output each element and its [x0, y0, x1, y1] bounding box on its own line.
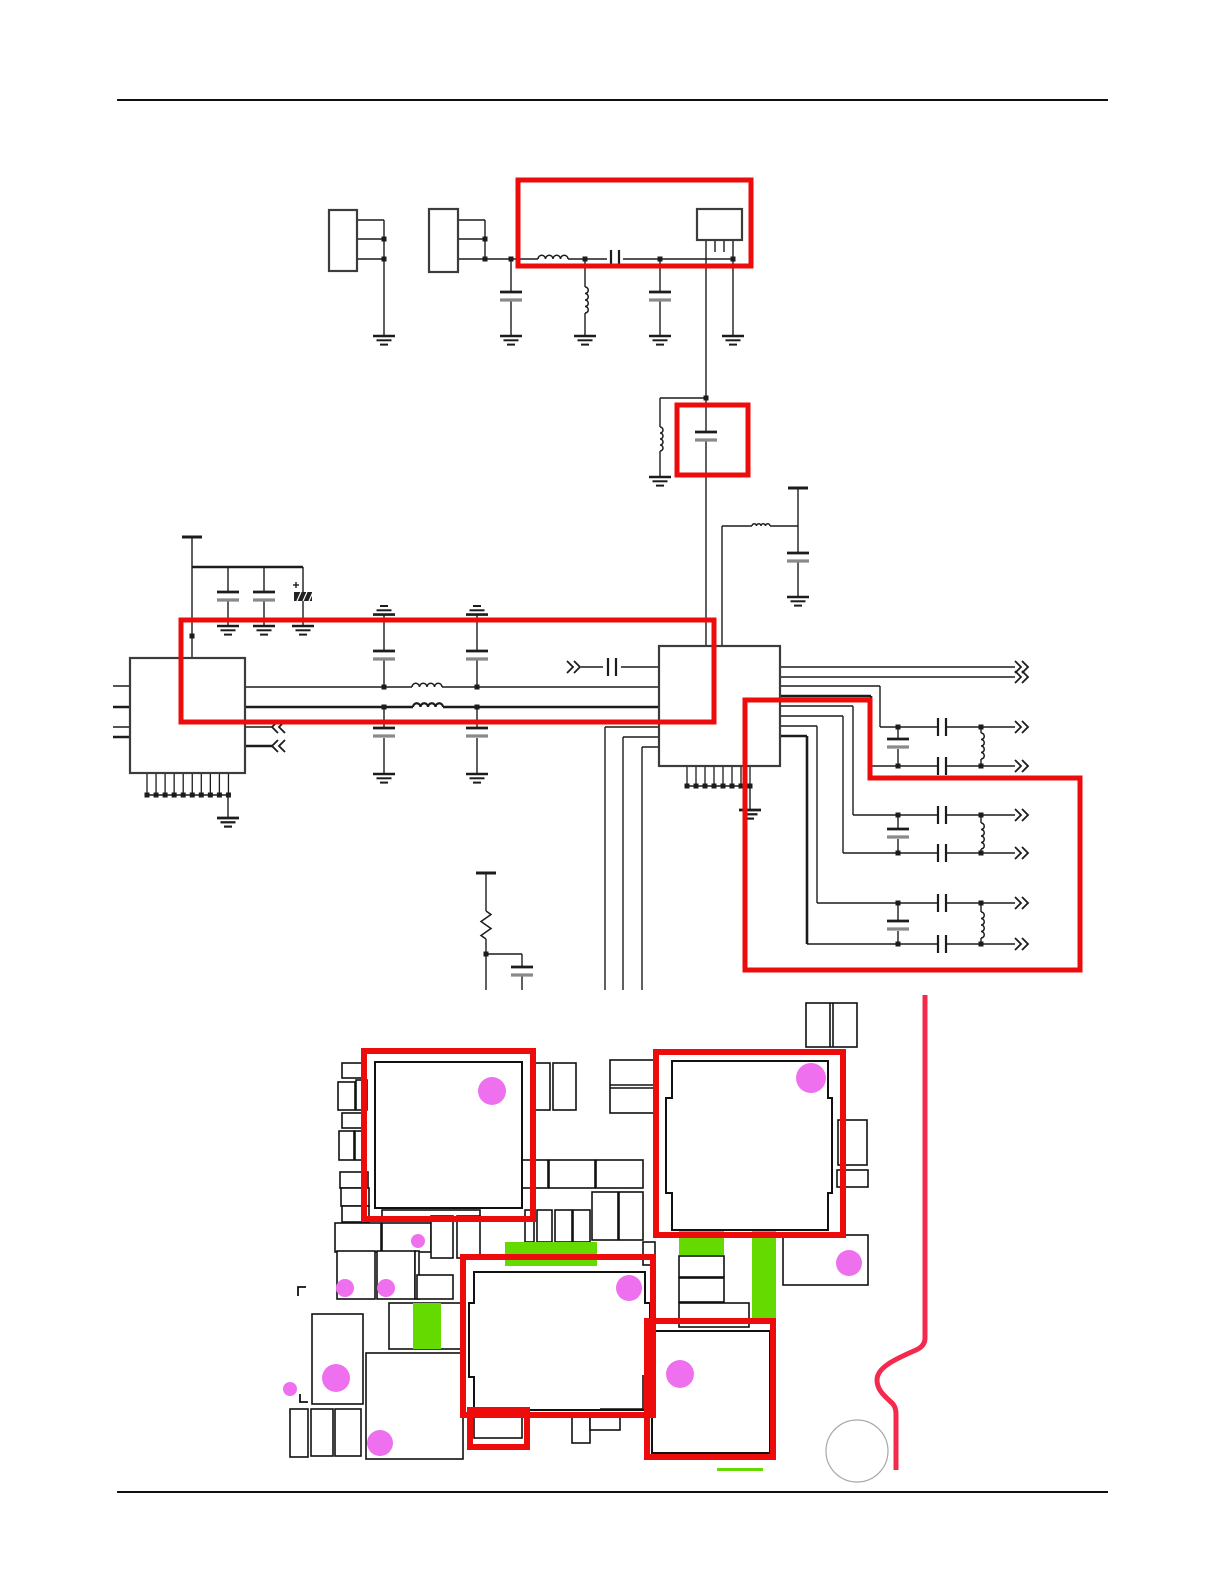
board-edge-line [877, 995, 925, 1470]
junction-dot [484, 952, 489, 957]
junction-dot [896, 764, 901, 769]
magenta-marker-dot [796, 1063, 826, 1093]
pcb-component [549, 1160, 595, 1188]
offpage-arrow-right-icon [1015, 847, 1028, 859]
junction-dot [979, 764, 984, 769]
pcb-component [553, 1063, 576, 1110]
junction-dot [896, 851, 901, 856]
left-ic [130, 658, 245, 773]
inductor [538, 255, 568, 259]
inductor [981, 823, 984, 849]
inductor [660, 427, 663, 451]
pcb-component [555, 1210, 572, 1242]
inductor [752, 524, 770, 526]
offpage-arrow-right-icon [567, 661, 580, 673]
junction-dot [979, 942, 984, 947]
offpage-arrow-right-icon [1015, 661, 1028, 673]
right-ic [659, 646, 780, 766]
junction-dot [896, 942, 901, 947]
manual-page [0, 0, 1225, 1585]
junction-dot [979, 901, 984, 906]
junction-dot [483, 237, 488, 242]
junction-dot [483, 257, 488, 262]
junction-dot [979, 813, 984, 818]
pcb-component [619, 1192, 643, 1240]
offpage-arrow-right-icon [1015, 760, 1028, 772]
inductor [981, 912, 984, 938]
offpage-arrow-right-icon [1015, 897, 1028, 909]
pcb-component [335, 1409, 361, 1456]
junction-dot [896, 813, 901, 818]
magenta-marker-dot [322, 1364, 350, 1392]
junction-dot [509, 257, 514, 262]
board-corner-mark [298, 1287, 306, 1296]
junction-dot [731, 257, 736, 262]
pcb-ic-d [652, 1331, 770, 1453]
pcb-component [311, 1409, 333, 1456]
offpage-arrow-right-icon [1015, 809, 1028, 821]
junction-dot [979, 851, 984, 856]
pcb-component [573, 1210, 590, 1242]
offpage-arrow-right-icon [1015, 721, 1028, 733]
junction-dot [382, 685, 387, 690]
pcb-component [679, 1256, 724, 1277]
green-line [717, 1468, 763, 1471]
magenta-marker-dot [411, 1234, 425, 1248]
resistor [481, 911, 491, 939]
magenta-marker-dot [836, 1250, 862, 1276]
junction-dot [382, 257, 387, 262]
filter-component [697, 209, 742, 240]
inductor [412, 683, 442, 687]
offpage-arrow-left-icon [272, 740, 285, 752]
green-trace [413, 1303, 441, 1349]
pcb-component [806, 1003, 857, 1047]
board-corner-mark [300, 1394, 308, 1402]
mounting-hole-circle [826, 1420, 888, 1482]
pcb-component [431, 1216, 453, 1258]
green-trace [752, 1230, 776, 1322]
offpage-arrow-right-icon [1015, 938, 1028, 950]
junction-dot [979, 725, 984, 730]
junction-dot [704, 396, 709, 401]
pcb-component [335, 1223, 381, 1252]
junction-dot [475, 685, 480, 690]
pcb-component [290, 1409, 308, 1457]
junction-dot [190, 634, 195, 639]
magenta-marker-dot [336, 1279, 354, 1297]
junction-dot [583, 257, 588, 262]
junction-dot [382, 705, 387, 710]
pcb-component [457, 1216, 480, 1258]
junction-dot [475, 705, 480, 710]
inductor [981, 733, 984, 759]
magenta-marker-dot [666, 1360, 694, 1388]
junction-dot [896, 901, 901, 906]
pcb-component [596, 1160, 643, 1188]
pcb-component [592, 1192, 618, 1240]
inductor [585, 287, 588, 313]
junction-dot [658, 257, 663, 262]
schematic-and-pcb-figure [0, 0, 1225, 1585]
pcb-component [537, 1210, 552, 1242]
magenta-marker-dot [367, 1430, 393, 1456]
connector-2 [429, 209, 458, 272]
pcb-component [572, 1414, 590, 1443]
offpage-arrow-right-icon [1015, 671, 1028, 683]
magenta-marker-dot [377, 1279, 395, 1297]
inductor [413, 703, 443, 707]
highlight-red-box [745, 700, 1080, 970]
magenta-marker-dot [478, 1077, 506, 1105]
pcb-component [339, 1131, 354, 1160]
pcb-component [417, 1275, 453, 1299]
pcb-component [534, 1063, 550, 1110]
pcb-component [679, 1278, 724, 1302]
pcb-component [610, 1060, 655, 1113]
connector-1 [329, 210, 357, 271]
magenta-marker-dot [616, 1275, 642, 1301]
junction-dot [896, 725, 901, 730]
pcb-component [338, 1082, 355, 1110]
magenta-marker-dot [283, 1382, 297, 1396]
junction-dot [382, 237, 387, 242]
